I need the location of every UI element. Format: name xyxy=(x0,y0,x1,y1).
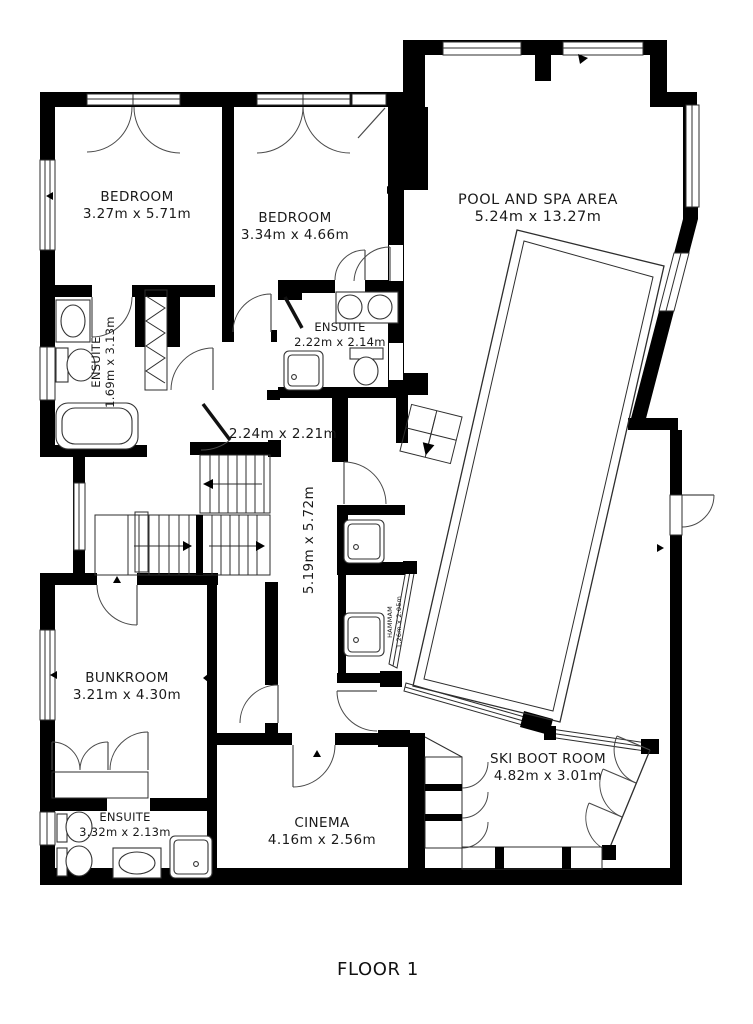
label-cinema-name: CINEMA xyxy=(294,815,350,831)
stairs-main xyxy=(95,455,270,575)
label-corridor-dims: 5.19m x 5.72m xyxy=(301,486,317,594)
door-bedroom2-hall xyxy=(233,294,271,332)
door-cinema-entry xyxy=(293,745,335,787)
label-hall-dims: 2.24m x 2.21m xyxy=(229,426,337,442)
label-bedroom2-name: BEDROOM xyxy=(258,210,331,226)
label-skiboot-name: SKI BOOT ROOM xyxy=(490,751,606,767)
window-pool-slant xyxy=(659,253,689,311)
toilet-ensuite3-2 xyxy=(57,846,92,876)
label-ensuite3-dims: 3.32m x 2.13m xyxy=(79,825,171,839)
floor-plan-page: BEDROOM 3.27m x 5.71m BEDROOM 3.34m x 4.… xyxy=(0,0,753,1024)
window-bedroom1-left xyxy=(40,160,55,250)
label-ensuite1-name: ENSUITE xyxy=(89,336,103,387)
door-bunkroom-entry xyxy=(97,585,137,625)
door-balcony-bedroom2 xyxy=(257,107,350,153)
shower-ensuite2 xyxy=(284,351,323,390)
windows xyxy=(40,42,699,845)
label-bunkroom-dims: 3.21m x 4.30m xyxy=(73,687,181,703)
sinks-ensuite2 xyxy=(336,292,398,323)
skiboot-cubbies xyxy=(425,737,488,848)
door-bedroom2-pool xyxy=(354,247,390,281)
stair-cupboard xyxy=(135,512,148,572)
door-balcony-bedroom1 xyxy=(87,107,180,153)
label-skiboot-dims: 4.82m x 3.01m xyxy=(494,768,602,784)
pool-wall-stub xyxy=(535,55,551,81)
door-bedroom2-terrace xyxy=(358,108,385,138)
sink-ensuite3 xyxy=(113,848,161,878)
stairs-pool-steps xyxy=(400,404,462,463)
closet-rail xyxy=(145,290,167,390)
balcony-frame-bedroom2 xyxy=(257,94,350,105)
label-bunkroom-name: BUNKROOM xyxy=(85,670,169,686)
door-corridor-skiboot xyxy=(337,691,377,731)
label-pool-dims: 5.24m x 13.27m xyxy=(475,209,602,225)
label-hammam-name: HAMMAM xyxy=(386,606,394,638)
window-ensuite1-left xyxy=(40,347,55,400)
window-pool-right xyxy=(686,105,699,207)
door-wardrobe-right xyxy=(80,742,108,770)
sink-ensuite1 xyxy=(56,300,90,342)
door-shower-room xyxy=(344,462,386,504)
label-pool-name: POOL AND SPA AREA xyxy=(458,192,618,208)
door-closet-corridor xyxy=(171,348,213,390)
shower-hammam-tray xyxy=(344,613,384,656)
glazing-skiboot-pool xyxy=(404,683,553,735)
floor-plan-drawing: BEDROOM 3.27m x 5.71m BEDROOM 3.34m x 4.… xyxy=(0,0,753,1024)
window-pool-top-2 xyxy=(563,42,643,55)
floor-title: FLOOR 1 xyxy=(337,959,419,980)
window-pool-top-1 xyxy=(443,42,521,55)
window-ensuite3-left xyxy=(40,812,55,845)
wardrobe-bunkroom xyxy=(52,772,148,798)
shower-ensuite3 xyxy=(170,836,212,878)
stair-landing xyxy=(95,515,128,575)
door-anteroom xyxy=(240,685,278,723)
label-ensuite3-name: ENSUITE xyxy=(99,810,150,824)
label-bedroom2-dims: 3.34m x 4.66m xyxy=(241,227,349,243)
toilet-ensuite2 xyxy=(350,348,383,385)
bathtub-ensuite1 xyxy=(56,403,138,449)
label-ensuite2-dims: 2.22m x 2.14m xyxy=(294,335,386,349)
label-ensuite1-dims: 1.69m x 3.13m xyxy=(103,316,117,408)
shower-room-tray xyxy=(344,520,384,563)
glazing-skiboot-right xyxy=(544,726,659,754)
label-cinema-dims: 4.16m x 2.56m xyxy=(268,832,376,848)
pool xyxy=(413,230,664,722)
label-bedroom1-name: BEDROOM xyxy=(100,189,173,205)
skiboot-bench xyxy=(462,847,602,869)
label-ensuite2-name: ENSUITE xyxy=(314,320,365,334)
interior-walls xyxy=(40,107,428,885)
label-hammam-dims: 1.26m x 2.05m xyxy=(395,596,403,648)
door-exterior-right xyxy=(670,495,714,535)
window-recess xyxy=(74,483,85,550)
door-wardrobe-single xyxy=(110,732,148,770)
label-bedroom1-dims: 3.27m x 5.71m xyxy=(83,206,191,222)
balcony-frame-bedroom1 xyxy=(87,94,180,105)
door-wardrobe-left xyxy=(52,742,80,770)
